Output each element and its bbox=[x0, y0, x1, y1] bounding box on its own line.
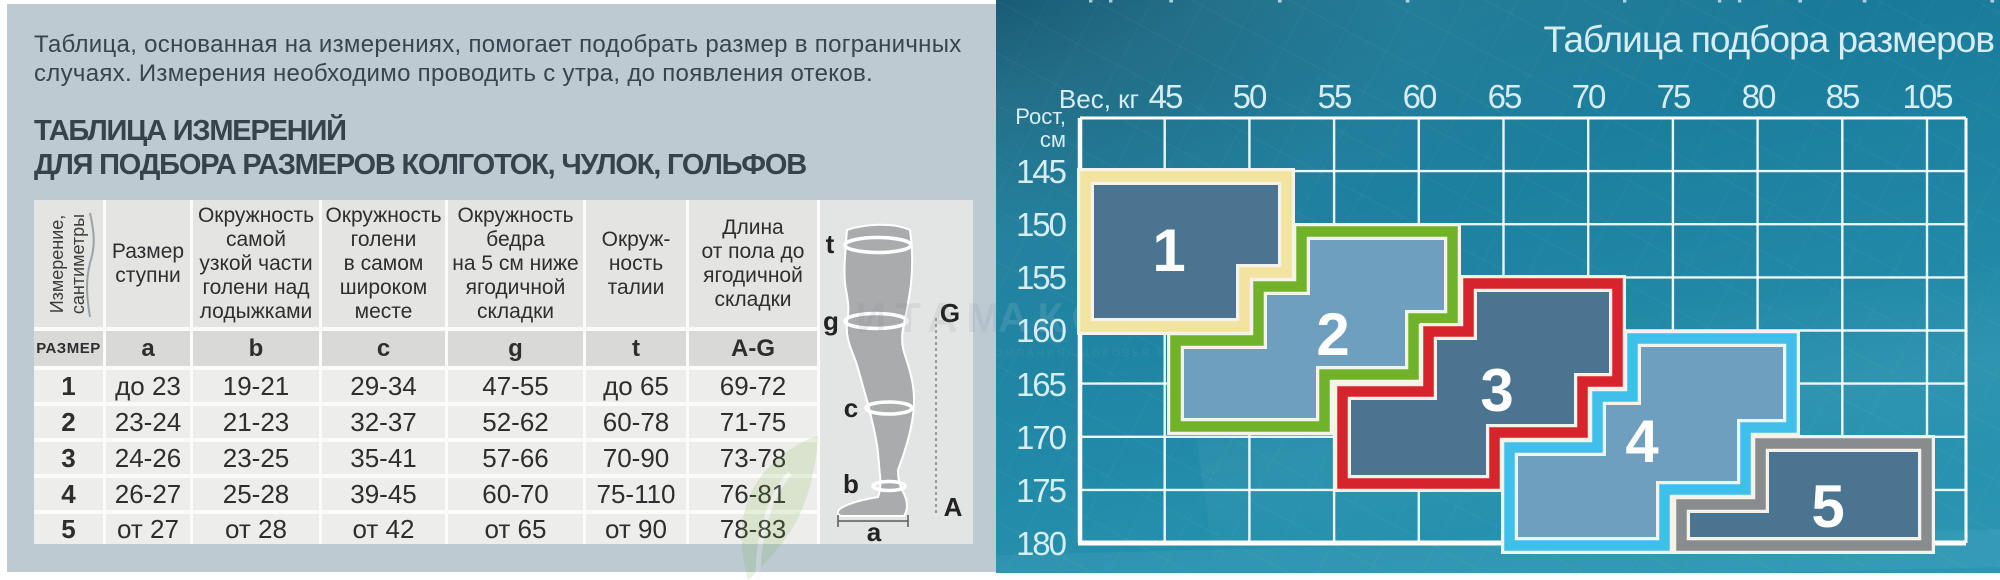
svg-text:145: 145 bbox=[1016, 153, 1066, 190]
svg-text:45: 45 bbox=[1149, 78, 1182, 115]
svg-text:85: 85 bbox=[1826, 78, 1859, 115]
svg-text:Таблица подбора размеров: Таблица подбора размеров bbox=[1544, 19, 1995, 60]
svg-text:170: 170 bbox=[1016, 419, 1067, 456]
svg-text:70: 70 bbox=[1572, 78, 1606, 115]
svg-text:50: 50 bbox=[1233, 78, 1267, 115]
svg-text:55: 55 bbox=[1318, 78, 1351, 115]
svg-text:155: 155 bbox=[1016, 259, 1066, 296]
svg-text:105: 105 bbox=[1902, 78, 1952, 115]
svg-text:Рост,: Рост, bbox=[1015, 104, 1066, 129]
svg-text:60: 60 bbox=[1403, 78, 1437, 115]
svg-text:160: 160 bbox=[1016, 312, 1067, 349]
svg-text:см: см bbox=[1040, 127, 1066, 152]
svg-text:175: 175 bbox=[1016, 472, 1066, 509]
svg-text:1: 1 bbox=[1152, 217, 1185, 284]
svg-text:Вес, кг: Вес, кг bbox=[1059, 84, 1139, 114]
svg-text:4: 4 bbox=[1625, 408, 1659, 475]
svg-text:180: 180 bbox=[1016, 525, 1067, 562]
svg-text:3: 3 bbox=[1480, 357, 1513, 424]
svg-text:5: 5 bbox=[1811, 473, 1844, 540]
svg-text:150: 150 bbox=[1016, 206, 1067, 243]
svg-text:80: 80 bbox=[1742, 78, 1776, 115]
svg-text:75: 75 bbox=[1657, 78, 1690, 115]
svg-text:165: 165 bbox=[1016, 366, 1066, 403]
svg-text:2: 2 bbox=[1316, 301, 1349, 368]
svg-text:65: 65 bbox=[1488, 78, 1521, 115]
